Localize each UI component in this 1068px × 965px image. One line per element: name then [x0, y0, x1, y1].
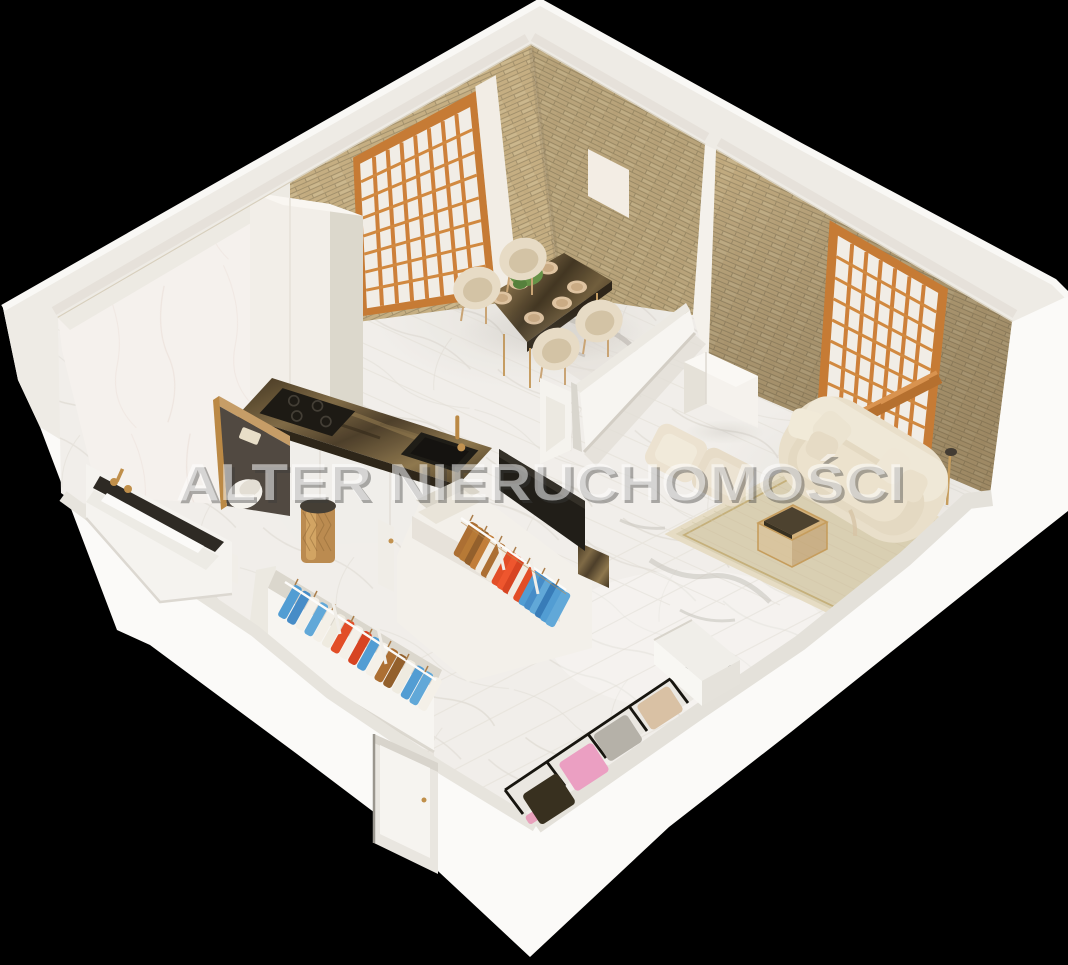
svg-text:ALTER NIERUCHOMOŚCI: ALTER NIERUCHOMOŚCI [176, 454, 904, 512]
